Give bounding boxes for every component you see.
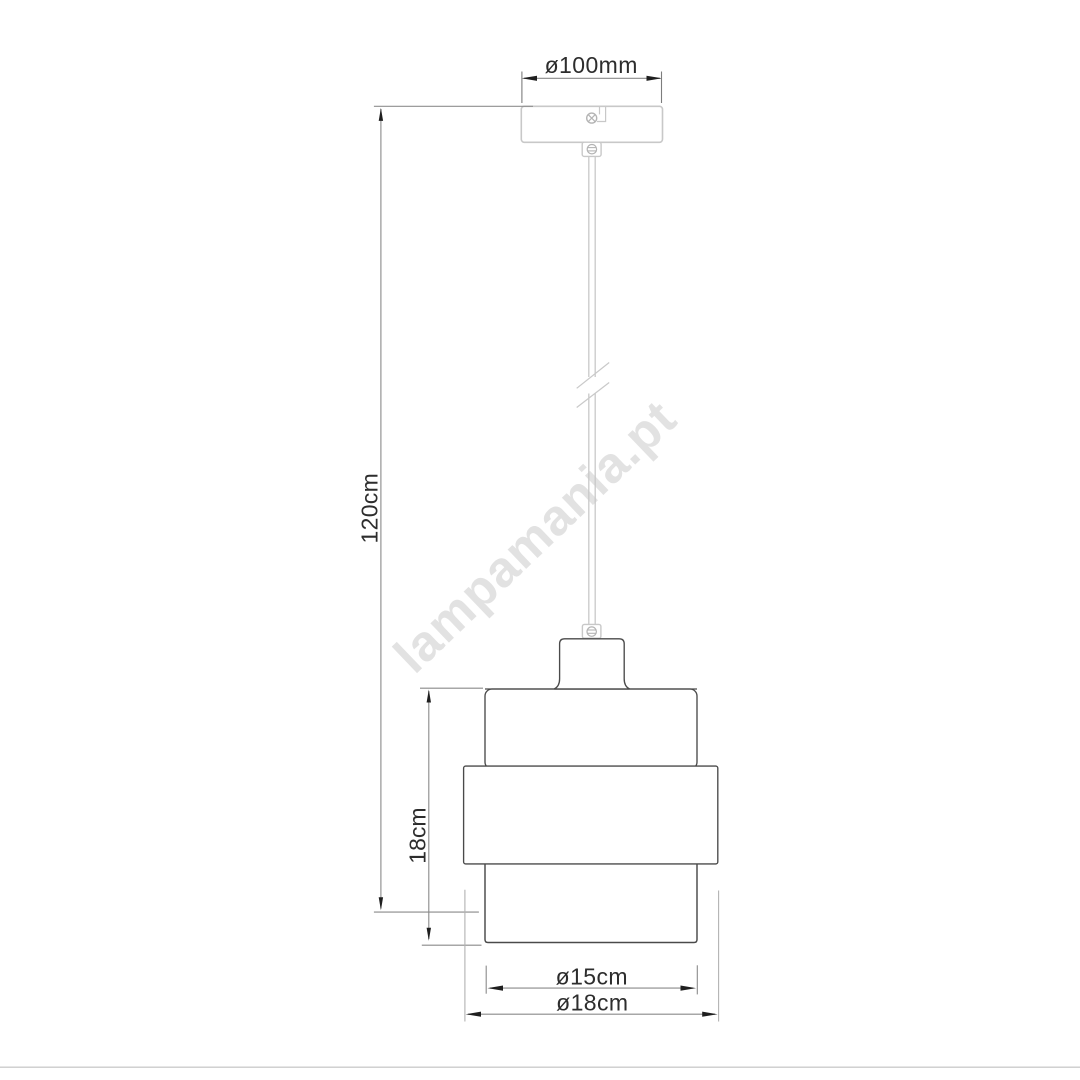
svg-text:18cm: 18cm [405,807,431,863]
svg-text:lampamania.pt: lampamania.pt [383,389,687,683]
svg-text:ø15cm: ø15cm [556,964,628,990]
svg-text:ø18cm: ø18cm [556,989,628,1015]
svg-text:ø100mm: ø100mm [545,52,638,78]
svg-text:120cm: 120cm [357,473,383,544]
